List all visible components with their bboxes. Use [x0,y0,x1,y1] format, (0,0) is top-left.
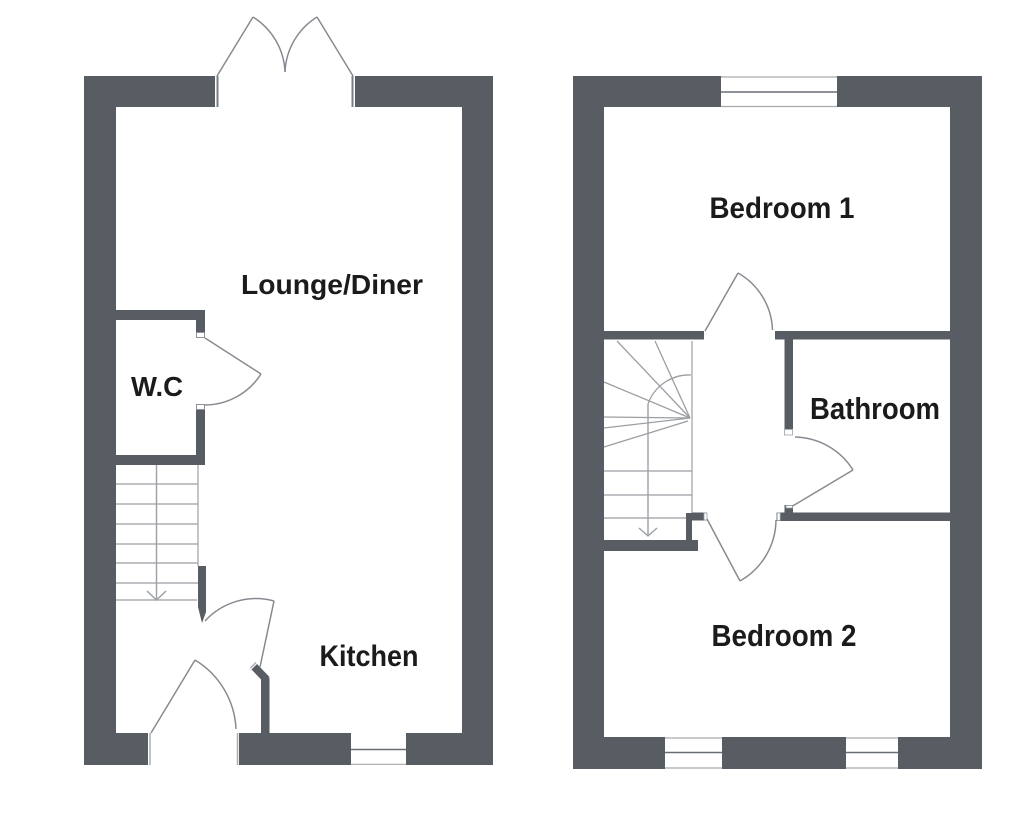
svg-text:W.C: W.C [131,371,183,402]
svg-text:Bedroom 2: Bedroom 2 [712,618,857,653]
svg-text:Bathroom: Bathroom [810,391,940,426]
svg-text:Lounge/Diner: Lounge/Diner [241,269,423,300]
svg-text:Bedroom 1: Bedroom 1 [710,192,855,225]
svg-text:Kitchen: Kitchen [320,640,419,673]
